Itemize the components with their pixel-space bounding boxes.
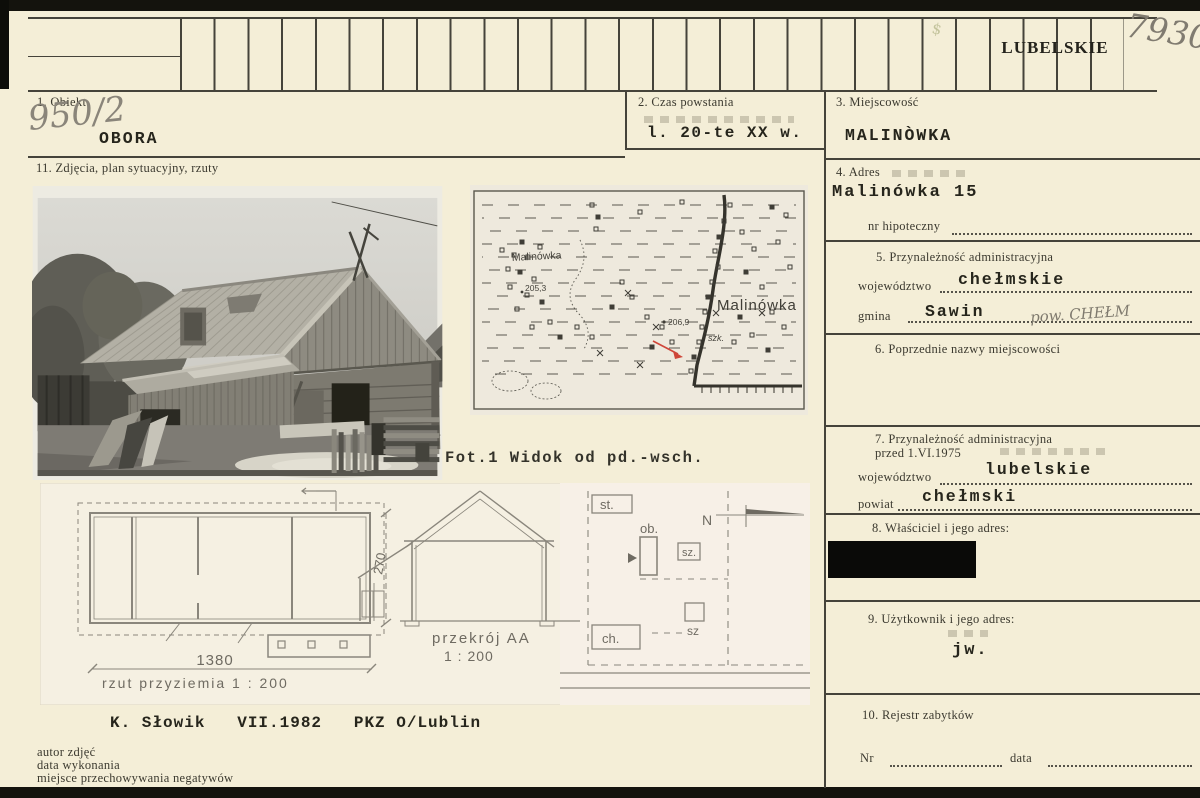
fill-line	[940, 289, 1192, 293]
scan-edge-corner	[0, 0, 9, 89]
erased-marks	[948, 630, 988, 637]
map-label-school: szk.	[708, 333, 724, 343]
field-3-value: MALINÒWKA	[845, 126, 952, 145]
divider-s1-s2	[625, 91, 627, 148]
map-label-village-large: Malinówka	[717, 297, 797, 314]
fill-line	[952, 231, 1192, 235]
field-10-nr-label: Nr	[860, 751, 874, 766]
field-9-value: jw.	[952, 641, 989, 660]
scan-edge-bottom	[0, 787, 1200, 798]
header-left-cell-divider	[28, 56, 180, 57]
field-7-powiat-label: powiat	[858, 497, 894, 512]
credit-line: K. Słowik VII.1982 PKZ O/Lublin	[110, 714, 481, 732]
section-divider	[824, 693, 1200, 695]
document-scan: $ LUBELSKIE 7930 1. Obiekt 950/2 OBORA 2…	[0, 0, 1200, 798]
field-3-label: 3. Miejscowość	[836, 95, 919, 110]
section-divider	[824, 600, 1200, 602]
archive-number-handwritten: 7930	[1123, 6, 1200, 58]
field-10-data-label: data	[1010, 751, 1032, 766]
region-stamp: LUBELSKIE	[985, 38, 1125, 58]
field-1-value: OBORA	[99, 129, 159, 148]
drawings-sheet: 1380 rzut przyziemia 1 : 200 270 przekró…	[40, 483, 810, 705]
footer-note-3: miejsce przechowywania negatywów	[37, 772, 233, 785]
site-north-label: N	[702, 512, 712, 528]
section-divider	[824, 333, 1200, 335]
section-divider	[824, 425, 1200, 427]
map-elevation-2: 206,9	[668, 317, 690, 327]
field-4-sublabel: nr hipoteczny	[868, 219, 940, 234]
rule-under-s3	[824, 158, 1200, 160]
scan-edge-top	[0, 0, 1200, 11]
field-2-value: l. 20-te XX w.	[647, 124, 802, 142]
site-label-st: st.	[600, 497, 614, 512]
erased-marks	[1000, 448, 1110, 455]
plan-caption: rzut przyziemia 1 : 200	[102, 675, 289, 691]
field-7-label: 7. Przynależność administracyjna	[875, 432, 1052, 447]
section-divider	[824, 240, 1200, 242]
section-scale: 1 : 200	[444, 648, 494, 664]
field-7-label2: przed 1.VI.1975	[875, 446, 961, 461]
site-label-ob: ob.	[640, 521, 658, 536]
erased-marks	[892, 170, 972, 177]
field-4-label: 4. Adres	[836, 165, 880, 180]
site-label-sz2: sz	[687, 624, 699, 638]
photo-barn	[32, 186, 443, 480]
fill-line	[890, 763, 1002, 767]
field-5-gmina-label: gmina	[858, 309, 891, 324]
field-4-value: Malinówka 15	[832, 183, 978, 202]
field-10-label: 10. Rejestr zabytków	[862, 708, 974, 723]
field-7-woj-value: lubelskie	[985, 460, 1092, 479]
photo-caption: Fot.1 Widok od pd.-wsch.	[445, 449, 704, 467]
field-5-woj-value: chełmskie	[958, 270, 1065, 289]
fill-line	[1048, 763, 1192, 767]
field-5-woj-label: województwo	[858, 279, 931, 294]
field-6-label: 6. Poprzednie nazwy miejscowości	[875, 342, 1060, 357]
field-9-label: 9. Użytkownik i jego adres:	[868, 612, 1015, 627]
section-divider	[824, 513, 1200, 515]
redaction-box	[828, 541, 976, 578]
rule-under-s2	[625, 148, 824, 150]
field-8-label: 8. Właściciel i jego adres:	[872, 521, 1009, 536]
site-label-ch: ch.	[602, 631, 619, 646]
fill-line	[940, 481, 1192, 485]
map-elevation-1: 205,3	[525, 283, 547, 293]
main-column-divider	[824, 91, 826, 788]
field-7-woj-label: województwo	[858, 470, 931, 485]
rule-under-s1	[28, 156, 625, 158]
field-2-label: 2. Czas powstania	[638, 95, 734, 110]
plan-dimension-length: 1380	[196, 652, 233, 669]
fill-line	[898, 507, 1192, 511]
field-7-powiat-value: chełmski	[922, 487, 1017, 506]
site-location-map: Malinówka 205,3 Malinówka 206,9 szk.	[470, 185, 808, 415]
header-grid-columns	[180, 17, 1124, 91]
section-caption: przekrój AA	[432, 630, 531, 647]
field-5-label: 5. Przynależność administracyjna	[876, 250, 1053, 265]
field-11-label: 11. Zdjęcia, plan sytuacyjny, rzuty	[36, 161, 218, 176]
erased-marks	[644, 116, 794, 123]
site-label-sz1: sz.	[682, 547, 696, 559]
